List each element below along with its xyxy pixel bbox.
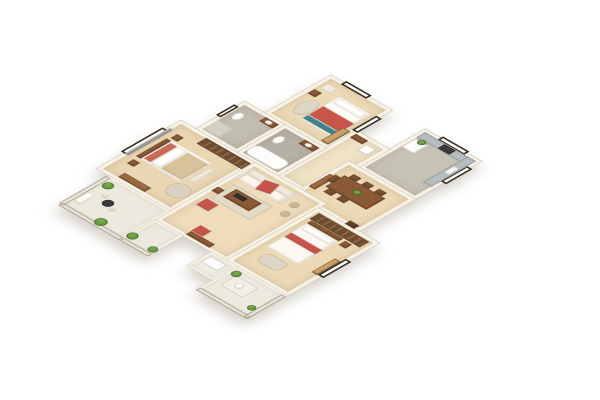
- isometric-wrapper: [41, 55, 509, 324]
- floor-plan-render: [0, 0, 600, 400]
- floor-plan: [41, 55, 509, 324]
